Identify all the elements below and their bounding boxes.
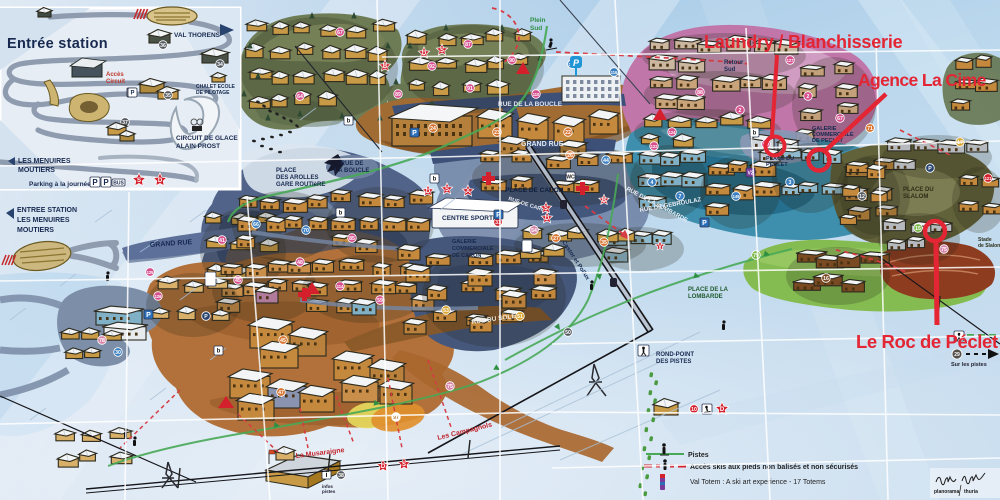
svg-text:D: D [545,216,550,222]
svg-text:92: 92 [429,64,435,70]
svg-text:MOUTIERS: MOUTIERS [17,227,54,234]
svg-text:29: 29 [954,352,960,358]
svg-text:75: 75 [447,384,453,390]
svg-text:S: S [544,206,548,212]
svg-text:71: 71 [867,126,873,132]
svg-text:LA BOUCLE: LA BOUCLE [335,168,370,174]
svg-text:67: 67 [337,30,343,36]
svg-text:90: 90 [509,58,515,64]
svg-text:149: 149 [733,194,741,199]
svg-text:30: 30 [115,350,121,356]
svg-text:85: 85 [349,236,355,242]
svg-text:ROND-POINT: ROND-POINT [656,352,694,358]
svg-text:planorama: planorama [934,489,960,495]
svg-text:ENTREE STATION: ENTREE STATION [17,207,77,214]
svg-text:47: 47 [278,390,284,396]
svg-text:b: b [217,349,221,355]
svg-text:LOMBARDE: LOMBARDE [688,294,723,300]
svg-text:CENTRE SPORTIF: CENTRE SPORTIF [442,215,499,222]
svg-text:116: 116 [611,70,618,75]
svg-text:DES PISTES: DES PISTES [656,359,691,365]
svg-text:124: 124 [669,130,677,135]
svg-text:Sud: Sud [724,67,736,73]
svg-text:P: P [103,178,109,187]
svg-text:RUE DE LA BOUCLE: RUE DE LA BOUCLE [498,101,563,108]
svg-text:b: b [347,119,351,125]
svg-text:36: 36 [160,43,166,49]
svg-text:V: V [658,244,662,250]
svg-text:Circuit: Circuit [106,79,125,85]
svg-text:A: A [466,189,471,195]
svg-text:de Slalom: de Slalom [978,243,1000,249]
svg-text:B: B [602,198,607,204]
svg-text:S: S [137,178,141,184]
svg-text:PECLET: PECLET [766,162,788,168]
svg-text:PLACE: PLACE [276,168,296,174]
svg-text:4: 4 [651,180,654,186]
svg-text:122: 122 [651,144,659,149]
svg-text:DES AROLLES: DES AROLLES [276,175,318,181]
svg-text:P: P [412,130,417,137]
svg-text:70: 70 [303,228,309,234]
svg-text:DE CARON: DE CARON [452,253,481,259]
svg-text:RUE DE: RUE DE [341,161,364,167]
svg-text:GRAND RUE: GRAND RUE [521,141,564,148]
svg-text:MOUTIERS: MOUTIERS [18,167,55,174]
svg-text:114: 114 [337,284,344,289]
svg-text:23: 23 [494,130,500,136]
svg-text:COMMERCIALE: COMMERCIALE [452,246,494,252]
svg-text:GALERIE: GALERIE [452,239,477,245]
svg-text:87: 87 [465,42,471,48]
svg-text:12: 12 [859,194,865,200]
svg-text:51: 51 [517,314,523,320]
svg-text:D: D [158,178,163,184]
svg-text:24: 24 [430,126,436,132]
svg-text:thuria: thuria [964,489,978,495]
svg-text:S: S [440,48,444,54]
svg-text:ALAIN PROST: ALAIN PROST [176,143,220,150]
svg-text:7: 7 [679,194,682,200]
svg-text:b: b [753,131,757,137]
svg-text:P: P [204,314,208,320]
svg-text:78: 78 [99,338,105,344]
svg-text:LES MENUIRES: LES MENUIRES [17,217,70,224]
svg-text:45: 45 [235,278,241,284]
svg-text:P: P [928,166,932,172]
svg-text:126: 126 [155,294,163,299]
svg-text:10: 10 [691,407,697,413]
svg-text:45: 45 [280,338,286,344]
svg-text:38: 38 [338,473,344,479]
svg-text:BUS: BUS [113,180,124,186]
svg-text:SLALOM: SLALOM [903,194,928,200]
svg-text:WC: WC [566,174,575,180]
svg-text:2: 2 [807,94,810,100]
svg-text:Accès: Accès [106,72,124,78]
svg-text:DE PILOTAGE: DE PILOTAGE [196,90,230,96]
svg-text:Sur les pistes: Sur les pistes [951,362,987,368]
svg-text:44: 44 [603,158,609,164]
svg-text:CIRCUIT DE GLACE: CIRCUIT DE GLACE [176,135,238,142]
svg-text:59: 59 [377,298,383,304]
svg-text:D: D [720,407,725,413]
svg-text:i: i [326,472,328,479]
svg-text:3: 3 [789,180,792,186]
svg-text:D: D [426,189,431,195]
svg-text:35: 35 [165,93,171,99]
svg-text:41: 41 [219,238,225,244]
svg-text:75: 75 [941,247,947,253]
svg-text:64: 64 [297,94,303,100]
svg-text:P: P [146,312,151,319]
svg-text:PLACE DE LA: PLACE DE LA [688,287,729,293]
svg-text:91: 91 [467,86,473,92]
svg-text:16: 16 [823,276,829,282]
svg-text:48: 48 [297,260,303,266]
svg-text:Retour: Retour [724,60,744,66]
svg-text:P: P [573,58,580,68]
svg-text:66: 66 [253,222,259,228]
svg-text:54: 54 [531,228,537,234]
svg-text:Plein: Plein [530,17,546,24]
svg-text:89: 89 [395,92,401,98]
svg-text:Entrée station: Entrée station [7,36,108,52]
svg-text:53: 53 [443,308,449,314]
svg-text:pistes: pistes [322,489,336,494]
svg-text:P: P [92,178,98,187]
svg-text:121: 121 [985,176,993,181]
svg-text:Le Roc de Péclet: Le Roc de Péclet [856,331,998,352]
svg-text:22: 22 [565,130,571,136]
svg-text:b: b [339,211,343,217]
svg-text:127: 127 [787,58,795,63]
svg-text:Sud: Sud [530,25,542,32]
svg-text:15: 15 [915,226,921,232]
svg-text:35: 35 [601,240,607,246]
svg-text:34: 34 [217,62,223,68]
svg-text:PLACE DU: PLACE DU [903,187,934,193]
svg-text:Val Totem : A ski art experien: Val Totem : A ski art experience - 17 To… [690,479,826,486]
svg-text:B: B [383,64,388,70]
svg-text:2: 2 [739,108,742,114]
svg-text:P: P [130,91,134,97]
svg-text:S: S [445,187,449,193]
svg-text:125: 125 [147,270,155,275]
svg-text:S: S [402,462,406,468]
svg-text:Pistes: Pistes [688,452,709,459]
svg-text:P: P [702,220,707,227]
svg-text:b: b [433,177,437,183]
svg-text:67: 67 [837,116,843,122]
svg-text:GARE ROUTIèRE: GARE ROUTIèRE [276,182,325,188]
svg-text:27: 27 [553,236,559,242]
svg-text:D: D [381,464,386,470]
svg-text:VAL THORENS: VAL THORENS [174,32,221,39]
svg-text:Agence La Cime: Agence La Cime [858,70,987,90]
svg-text:50: 50 [565,330,571,336]
svg-text:110: 110 [533,92,540,97]
svg-text:PLACE DE CARON: PLACE DE CARON [505,187,564,194]
svg-text:Parking à la journée: Parking à la journée [29,181,91,188]
svg-text:Laundry / Blanchisserie: Laundry / Blanchisserie [704,32,903,52]
svg-text:88: 88 [697,90,703,96]
